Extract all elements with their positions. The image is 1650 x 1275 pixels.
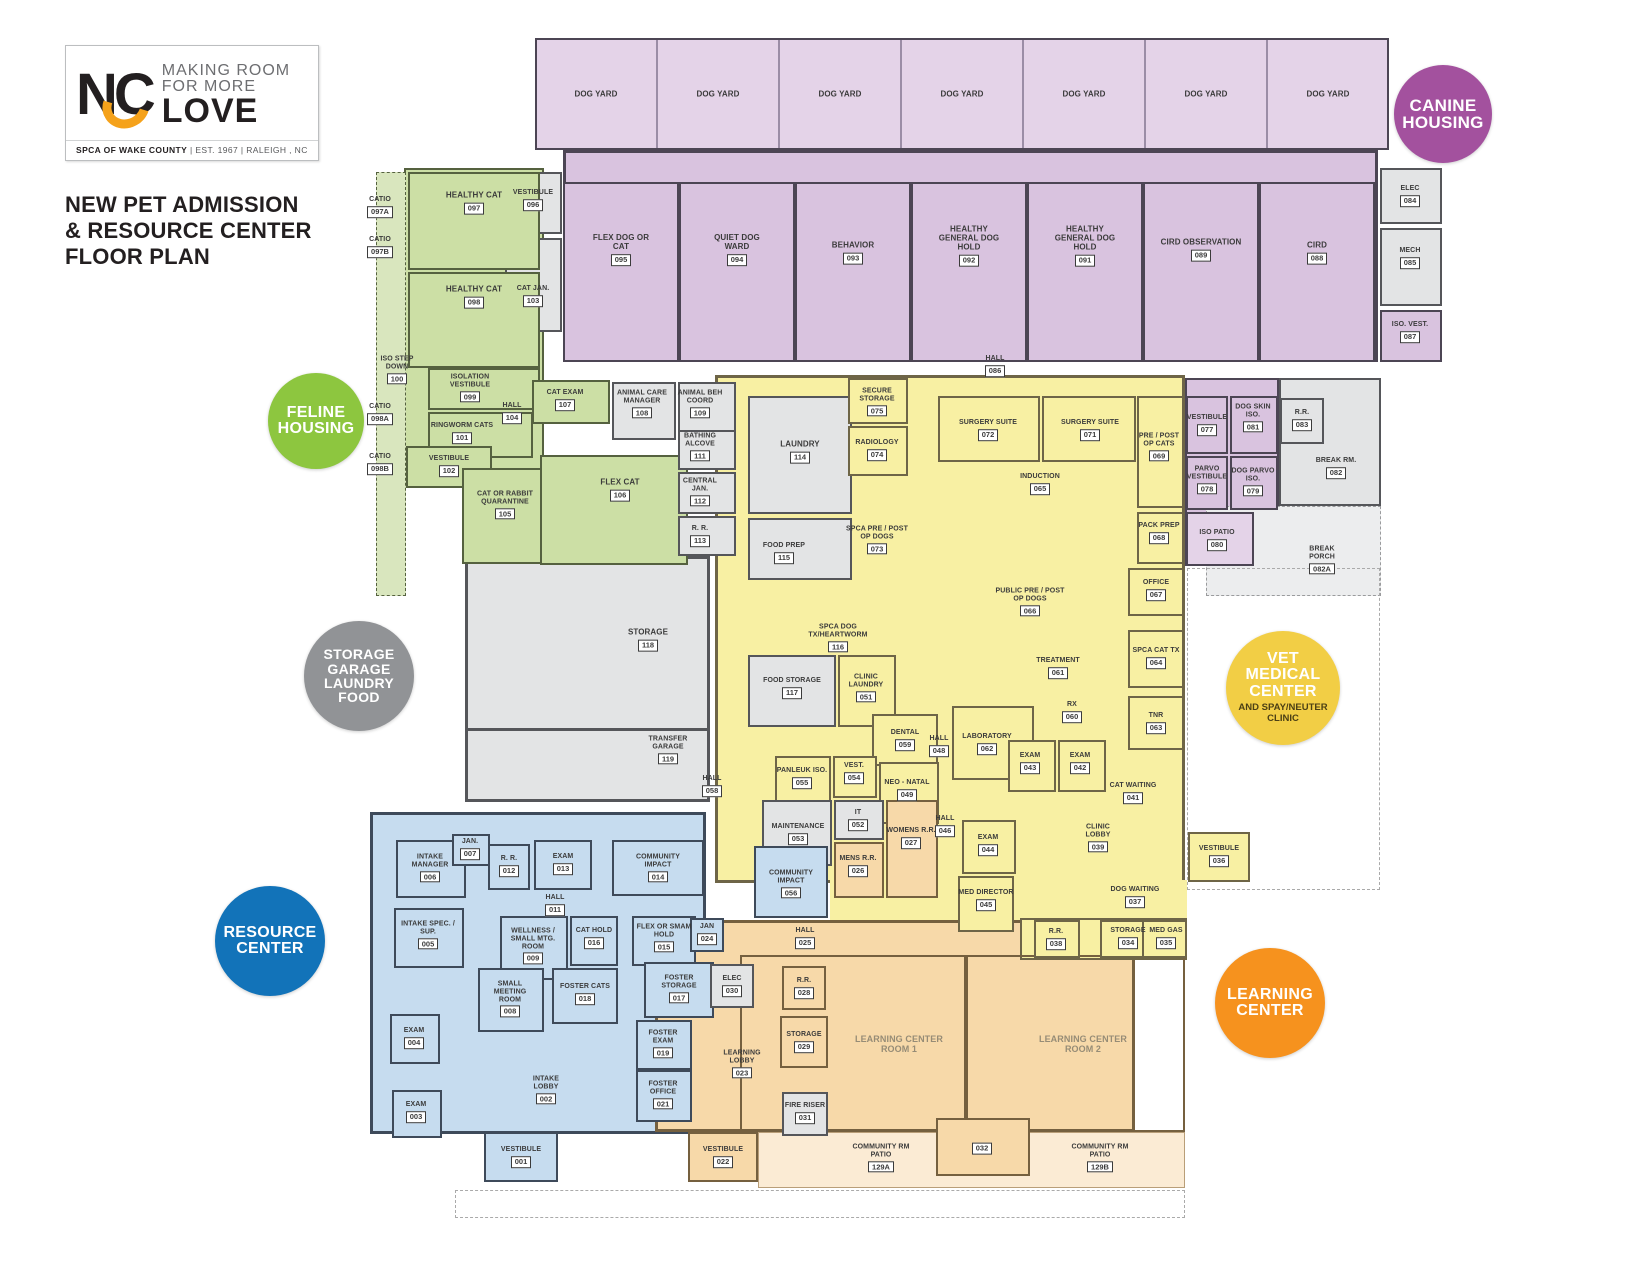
room-019 [636,1020,692,1070]
room-108 [612,382,676,440]
room-027 [886,800,938,898]
badge-label-line: CENTER [1249,684,1317,700]
room-016 [570,916,618,966]
room-064 [1128,630,1184,688]
room-075 [848,378,908,424]
room-078 [1186,456,1228,510]
zone-storage-divider [465,728,710,731]
zone-yards-outline [535,38,1389,150]
room-054 [833,756,877,798]
badge-label-line: MEDICAL [1246,667,1321,683]
room-003 [392,1090,442,1138]
room-081 [1230,396,1278,454]
room-012 [488,844,530,890]
room-015 [632,916,696,966]
badge-label-line: LEARNING [1227,987,1313,1003]
room-055 [775,756,831,806]
badge-label-line: FOOD [338,690,380,704]
badge-label-line: RESOURCE [223,925,316,941]
logo-org-detail: | EST. 1967 | RALEIGH , NC [187,145,308,155]
badge-learning-center: LEARNINGCENTER [1215,948,1325,1058]
room-005 [394,908,464,968]
room-068 [1137,512,1184,564]
room-022 [688,1132,758,1182]
tagline-love: LOVE [162,95,290,127]
room-030 [710,964,754,1008]
floor-plan-page: { "header": { "logo": { "nc": "NC", "tag… [0,0,1650,1275]
room-115 [748,518,852,580]
room-004 [390,1014,440,1064]
tagline-line1: MAKING ROOM [162,63,290,79]
room-021 [636,1070,692,1122]
room-044 [962,820,1016,874]
spca-logo: NC MAKING ROOM FOR MORE LOVE SPCA OF WAK… [65,45,319,161]
badge-canine-housing: CANINEHOUSING [1394,65,1492,163]
badge-label-line: HOUSING [278,421,355,437]
room-106 [540,455,688,565]
room-043 [1008,740,1056,792]
room-018 [552,968,618,1024]
room-074 [848,426,908,476]
badge-label-line: GARAGE [327,662,390,676]
room-099 [428,368,540,410]
room-091 [1027,182,1143,362]
room-071 [1042,396,1136,462]
room-084 [1380,168,1442,224]
room-114 [748,396,852,514]
room-098 [408,272,540,368]
room-031 [782,1092,828,1136]
room-113 [678,516,736,556]
room-038 [1034,920,1080,958]
room-111 [678,430,736,470]
badge-label-line: FELINE [287,405,346,421]
room-093 [795,182,911,362]
room-117 [748,655,836,727]
room-036 [1188,832,1250,882]
room-024 [690,918,724,952]
room-026 [834,842,884,898]
room-067 [1128,568,1184,616]
logo-tagline: MAKING ROOM FOR MORE LOVE [162,63,290,128]
room-095 [563,182,679,362]
title-line3: FLOOR PLAN [65,244,312,270]
room-028 [782,966,826,1010]
room-092 [911,182,1027,362]
badge-label-line: VET [1267,651,1299,667]
room-001 [484,1132,558,1182]
room-052 [834,800,884,840]
room-045 [958,876,1014,932]
zone-storage-block [465,556,710,802]
badge-label-line: CENTER [236,941,304,957]
room-083 [1280,398,1324,444]
room-080 [1186,512,1254,566]
title-line2: & RESOURCE CENTER [65,218,312,244]
room-017 [644,962,714,1018]
room-097 [408,172,540,270]
zone-learning-room1-outline [740,955,966,1132]
room-105 [462,468,550,564]
room-069 [1137,396,1184,508]
room-077 [1186,396,1228,454]
zone-learning-room2-outline [966,955,1185,1132]
badge-vet-medical: VETMEDICALCENTERAND SPAY/NEUTER CLINIC [1226,631,1340,745]
room-008 [478,968,544,1032]
zone-dashed-bottom-terrace [455,1190,1185,1218]
logo-byline: SPCA OF WAKE COUNTY | EST. 1967 | RALEIG… [66,140,318,160]
title-line1: NEW PET ADMISSION [65,192,312,218]
badge-label-line: HOUSING [1402,114,1483,131]
badge-resource-center: RESOURCECENTER [215,886,325,996]
room-107 [532,380,610,424]
badge-sublabel: AND SPAY/NEUTER CLINIC [1226,703,1340,725]
room-007 [452,834,490,866]
badge-label-line: STORAGE [323,647,394,661]
nc-monogram: NC [76,66,152,124]
page-title: NEW PET ADMISSION & RESOURCE CENTER FLOO… [65,192,312,270]
room-013 [534,840,592,890]
badge-feline-housing: FELINEHOUSING [268,373,364,469]
room-079 [1230,456,1278,510]
room-088 [1259,182,1375,362]
room-014 [612,840,704,896]
room-089 [1143,182,1259,362]
badge-storage-garage: STORAGEGARAGELAUNDRYFOOD [304,621,414,731]
room-032 [936,1118,1030,1176]
room-063 [1128,696,1184,750]
room-072 [938,396,1040,462]
room-094 [679,182,795,362]
badge-label-line: CENTER [1236,1003,1304,1019]
room-029 [780,1016,828,1068]
room-112 [678,472,736,514]
room-042 [1058,740,1106,792]
room-087 [1380,310,1442,362]
room-085 [1380,228,1442,306]
zone-catio-strip [376,172,406,596]
logo-org-name: SPCA OF WAKE COUNTY [76,145,187,155]
logo-top: NC MAKING ROOM FOR MORE LOVE [66,46,318,140]
badge-label-line: LAUNDRY [324,676,394,690]
room-035 [1142,920,1187,958]
badge-label-line: CANINE [1410,97,1477,114]
room-056 [754,846,828,918]
room-059 [872,714,938,766]
